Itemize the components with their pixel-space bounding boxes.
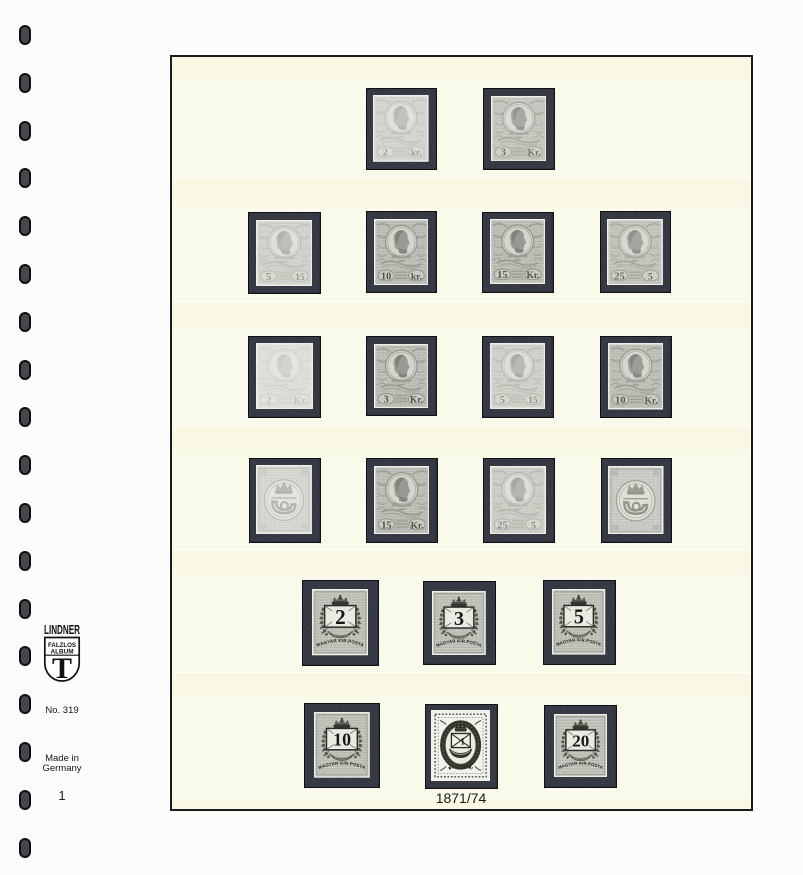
- svg-text:Kr.: Kr.: [410, 395, 423, 405]
- svg-text:3: 3: [383, 394, 388, 405]
- svg-text:2: 2: [383, 148, 388, 159]
- svg-text:Kr.: Kr.: [293, 395, 306, 406]
- svg-text:1: 1: [460, 738, 465, 748]
- svg-text:Kr.: Kr.: [410, 520, 423, 531]
- svg-text:15: 15: [295, 272, 305, 283]
- svg-text:5: 5: [648, 272, 653, 282]
- svg-text:15: 15: [381, 520, 391, 531]
- svg-text:5: 5: [574, 607, 584, 629]
- svg-text:15: 15: [528, 396, 538, 406]
- svg-text:T: T: [52, 652, 72, 684]
- svg-text:2: 2: [266, 395, 271, 406]
- svg-text:15: 15: [497, 270, 507, 281]
- svg-text:5: 5: [266, 272, 271, 283]
- svg-text:5: 5: [531, 520, 536, 531]
- svg-text:3: 3: [500, 147, 505, 158]
- svg-text:LINDNER: LINDNER: [44, 622, 80, 637]
- svg-text:Kr.: Kr.: [526, 271, 539, 281]
- svg-text:5: 5: [500, 395, 505, 406]
- svg-text:20: 20: [572, 731, 589, 750]
- svg-text:3: 3: [454, 607, 464, 629]
- svg-text:25: 25: [614, 271, 624, 282]
- svg-text:10: 10: [333, 730, 351, 750]
- svg-text:2: 2: [335, 605, 346, 629]
- svg-text:kr.: kr.: [411, 149, 422, 159]
- svg-text:10: 10: [381, 271, 391, 282]
- svg-text:10: 10: [615, 395, 625, 406]
- svg-text:Kr.: Kr.: [644, 396, 657, 406]
- svg-text:kr.: kr.: [411, 272, 422, 282]
- svg-text:Kr.: Kr.: [527, 148, 540, 158]
- svg-text:25: 25: [497, 519, 507, 531]
